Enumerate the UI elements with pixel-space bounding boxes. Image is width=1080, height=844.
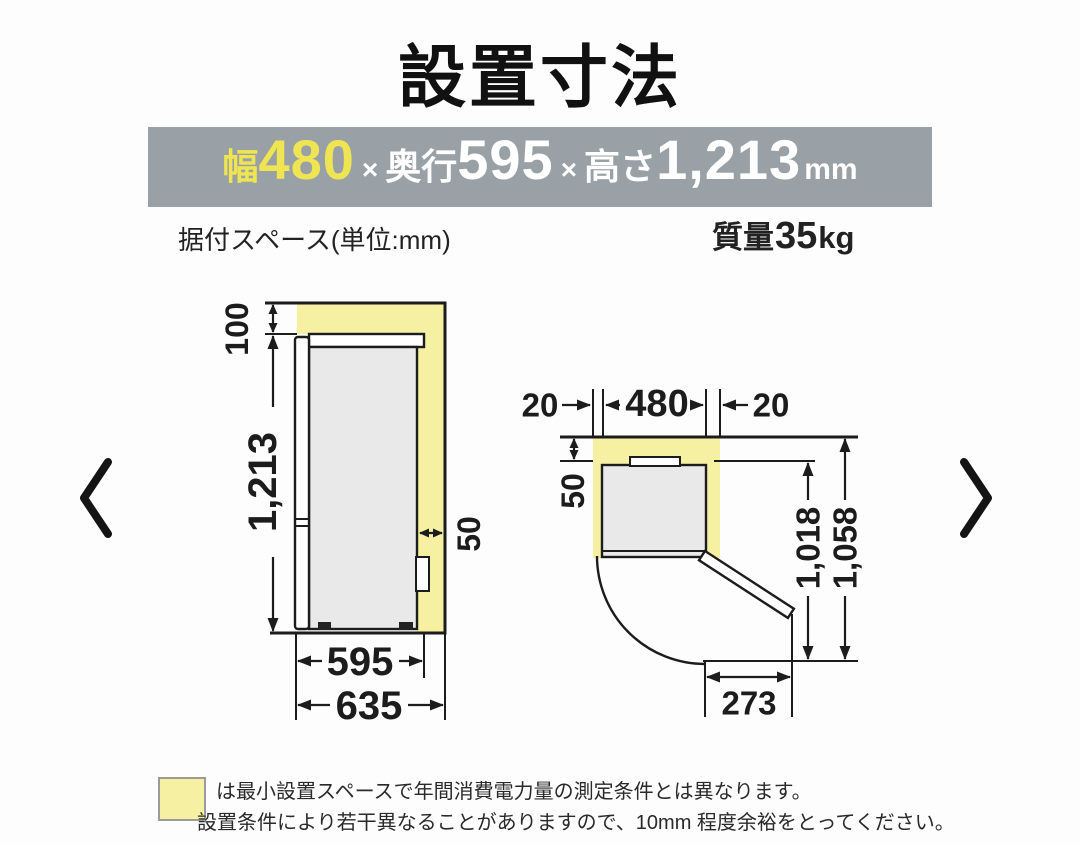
dim-label-total-depth: 635	[336, 684, 403, 728]
depth-value: 595	[457, 127, 553, 192]
nav-prev-button[interactable]	[72, 452, 120, 548]
dim-label-right-clearance: 20	[753, 387, 790, 424]
door-swing-arc	[597, 556, 705, 664]
weight-label: 質量	[712, 212, 774, 257]
compressor-recess	[416, 557, 429, 591]
dim-label-total-open-depth: 1,058	[827, 507, 864, 590]
page-title: 設置寸法	[0, 22, 1080, 121]
unit-label: mm	[804, 153, 857, 187]
weight-value: 35	[775, 215, 817, 258]
width-label: 幅	[222, 138, 258, 190]
dim-label-depth: 595	[327, 640, 394, 684]
top-view-diagram: 20 480 20 50 273 1,018 1,058	[505, 380, 895, 726]
width-value: 480	[258, 127, 354, 192]
spec-banner: 幅 480 × 奥行 595 × 高さ 1,213 mm	[148, 127, 932, 207]
fridge-body-top	[602, 465, 706, 557]
weight-unit: kg	[818, 220, 854, 256]
dim-label-rear-clearance: 50	[555, 473, 591, 509]
installation-dimensions-page: 設置寸法 幅 480 × 奥行 595 × 高さ 1,213 mm 据付スペース…	[0, 0, 1080, 844]
height-label: 高さ	[584, 138, 656, 190]
side-view-diagram: 100 1,213 50 595 635	[195, 288, 495, 728]
multiply-sign: ×	[561, 154, 577, 186]
dim-label-door-open-width: 273	[721, 685, 776, 722]
fridge-foot	[399, 622, 413, 630]
legend-line-2: 設置条件により若干異なることがありますので、10mm 程度余裕をとってください。	[197, 806, 955, 835]
dim-label-left-clearance: 20	[522, 387, 559, 424]
height-value: 1,213	[656, 127, 801, 192]
fridge-body-side	[309, 347, 417, 629]
chevron-right-icon	[952, 452, 1000, 548]
dim-label-top-clearance: 100	[219, 302, 255, 355]
legend-line-1: は最小設置スペースで年間消費電力量の測定条件とは異なります。	[216, 775, 812, 804]
fridge-door-side	[295, 337, 309, 629]
nav-next-button[interactable]	[952, 452, 1000, 548]
dim-label-height: 1,213	[241, 432, 285, 532]
open-door	[699, 551, 794, 618]
install-space-note: 据付スペース(単位:mm)	[178, 220, 451, 257]
depth-label: 奥行	[385, 138, 457, 190]
rear-protrusion	[630, 457, 680, 466]
dim-label-rear-clearance: 50	[451, 516, 487, 552]
fridge-top-cap	[309, 334, 424, 347]
weight-spec: 質量 35 kg	[712, 212, 854, 258]
multiply-sign: ×	[362, 154, 378, 186]
chevron-left-icon	[72, 452, 120, 548]
fridge-foot	[318, 622, 331, 630]
dim-label-width: 480	[625, 383, 688, 425]
dim-label-open-depth: 1,018	[790, 507, 827, 590]
